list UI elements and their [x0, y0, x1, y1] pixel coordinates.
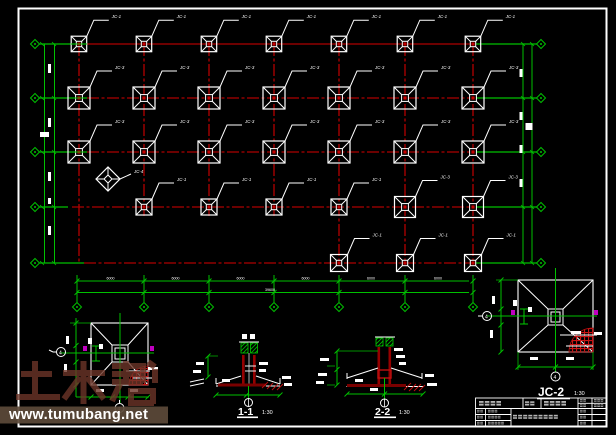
svg-text:JC-1: JC-1	[506, 233, 517, 238]
svg-text:JC-4: JC-4	[133, 169, 144, 174]
svg-text:JC-3: JC-3	[440, 119, 451, 124]
svg-text:JC-1: JC-1	[306, 14, 317, 19]
svg-text:1-1: 1-1	[238, 406, 253, 418]
svg-text:1:30: 1:30	[262, 410, 273, 416]
svg-text:2-2: 2-2	[375, 406, 390, 418]
svg-text:JC-3: JC-3	[309, 119, 320, 124]
svg-text:6000: 6000	[302, 277, 310, 281]
svg-text:JC-3: JC-3	[374, 65, 385, 70]
svg-text:www.tumubang.net: www.tumubang.net	[8, 407, 148, 423]
svg-text:JC-1: JC-1	[372, 233, 383, 238]
svg-text:4: 4	[554, 375, 557, 381]
svg-text:JC-3: JC-3	[244, 65, 255, 70]
svg-text:4: 4	[485, 315, 488, 321]
svg-text:JC-2: JC-2	[538, 385, 564, 399]
svg-text:1:30: 1:30	[399, 410, 410, 416]
svg-text:JC-3: JC-3	[114, 65, 125, 70]
svg-text:JC-3: JC-3	[309, 65, 320, 70]
svg-text:6000: 6000	[237, 277, 245, 281]
svg-text:39600: 39600	[265, 288, 275, 292]
svg-text:6000: 6000	[434, 277, 442, 281]
svg-text:1:30: 1:30	[574, 391, 585, 397]
svg-text:JC-1: JC-1	[306, 177, 317, 182]
svg-text:JC-3: JC-3	[114, 119, 125, 124]
svg-text:JC-3: JC-3	[440, 65, 451, 70]
svg-text:JC-1: JC-1	[241, 177, 252, 182]
svg-text:JC-1: JC-1	[371, 177, 382, 182]
svg-text:JC-1: JC-1	[438, 233, 449, 238]
svg-text:JC-3: JC-3	[374, 119, 385, 124]
svg-text:4: 4	[59, 351, 62, 357]
svg-text:JC-3: JC-3	[179, 119, 190, 124]
svg-text:JC-3: JC-3	[440, 175, 451, 180]
svg-text:JC-1: JC-1	[505, 14, 516, 19]
svg-text:JC-3: JC-3	[508, 119, 519, 124]
svg-text:JC-3: JC-3	[179, 65, 190, 70]
svg-text:6000: 6000	[172, 277, 180, 281]
svg-text:JC-1: JC-1	[176, 177, 187, 182]
svg-text:JC-1: JC-1	[176, 14, 187, 19]
svg-text:JC-1: JC-1	[111, 14, 122, 19]
svg-text:JC-3: JC-3	[508, 65, 519, 70]
svg-text:JC-3: JC-3	[244, 119, 255, 124]
svg-text:JC-1: JC-1	[437, 14, 448, 19]
svg-text:JC-1: JC-1	[371, 14, 382, 19]
svg-text:JC-3: JC-3	[508, 175, 519, 180]
svg-text:6000: 6000	[367, 277, 375, 281]
svg-text:6000: 6000	[107, 277, 115, 281]
svg-text:JC-1: JC-1	[241, 14, 252, 19]
